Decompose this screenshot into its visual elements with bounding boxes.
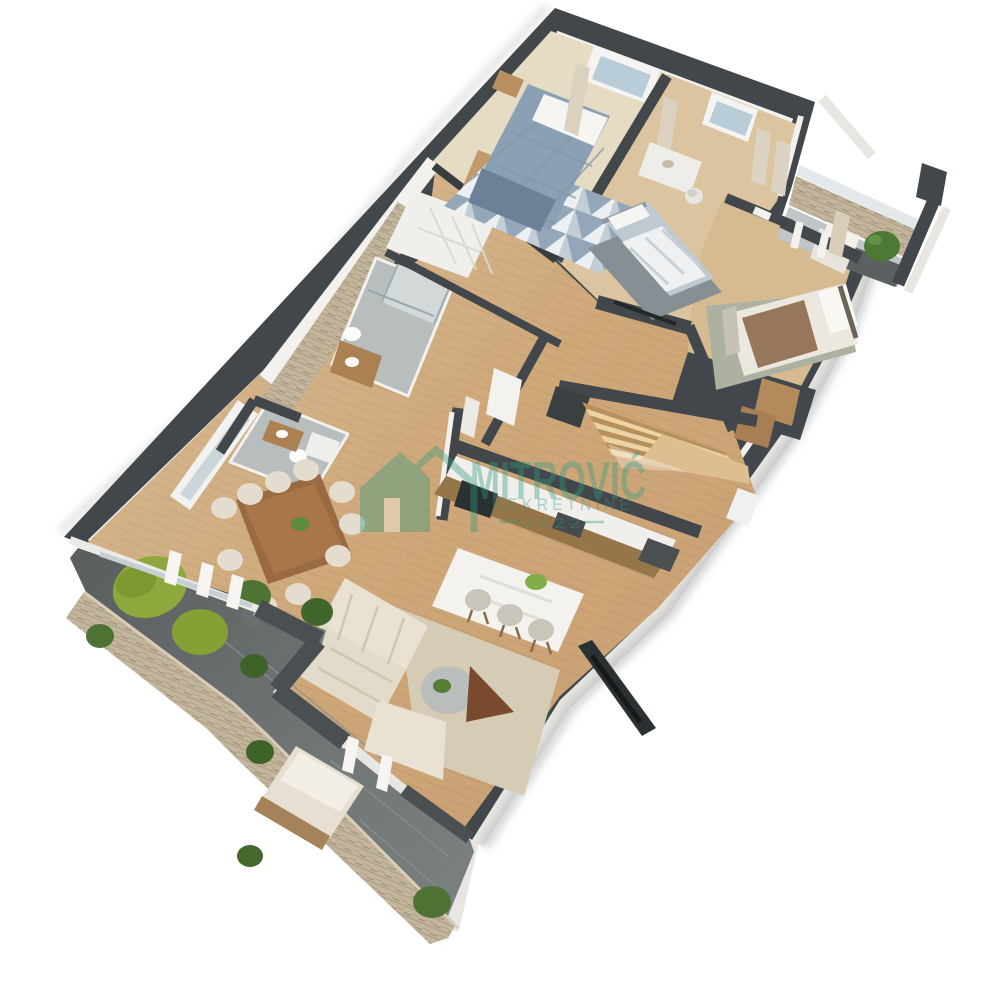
svg-text:2 0 2 2: 2 0 2 2: [524, 515, 580, 532]
svg-text:N E K R E T N I N E: N E K R E T N I N E: [492, 495, 630, 514]
